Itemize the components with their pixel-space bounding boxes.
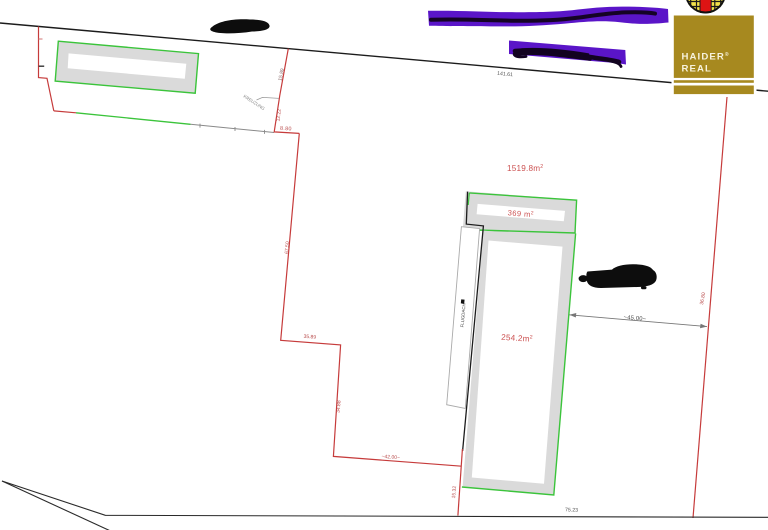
svg-text:KREUZUNG: KREUZUNG <box>242 94 266 112</box>
svg-text:8.80: 8.80 <box>280 126 292 133</box>
svg-text:1519.8m2: 1519.8m2 <box>507 164 543 173</box>
svg-text:35.89: 35.89 <box>303 334 316 341</box>
svg-text:254.2m2: 254.2m2 <box>501 333 533 344</box>
svg-text:~45.00~: ~45.00~ <box>623 315 647 323</box>
svg-text:12.22: 12.22 <box>276 108 283 121</box>
svg-text:36.80: 36.80 <box>699 292 707 306</box>
svg-text:HAIDER®: HAIDER® <box>682 51 730 63</box>
svg-text:141.61: 141.61 <box>497 71 513 78</box>
svg-text:34.88: 34.88 <box>336 400 343 413</box>
svg-text:REAL: REAL <box>682 64 713 75</box>
svg-text:67.50: 67.50 <box>284 241 291 254</box>
svg-text:369 m2: 369 m2 <box>507 208 534 219</box>
svg-text:75.23: 75.23 <box>565 507 578 513</box>
svg-text:15.89: 15.89 <box>278 68 286 82</box>
svg-text:15.32: 15.32 <box>451 485 458 498</box>
